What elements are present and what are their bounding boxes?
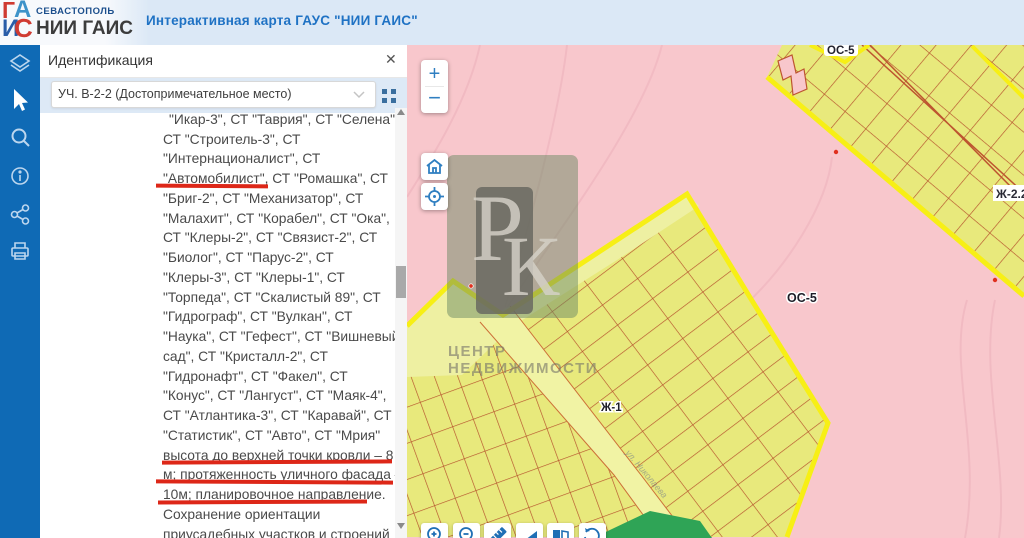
svg-text:Ж-1: Ж-1: [600, 402, 622, 414]
svg-text:Ж-2.2: Ж-2.2: [995, 187, 1024, 201]
svg-text:ОС-5: ОС-5: [787, 291, 817, 305]
svg-text:К: К: [502, 218, 560, 314]
svg-text:ЦЕНТР: ЦЕНТР: [448, 343, 506, 360]
svg-text:ОС-5: ОС-5: [827, 45, 855, 57]
svg-text:НЕДВИЖИМОСТИ: НЕДВИЖИМОСТИ: [448, 360, 598, 377]
